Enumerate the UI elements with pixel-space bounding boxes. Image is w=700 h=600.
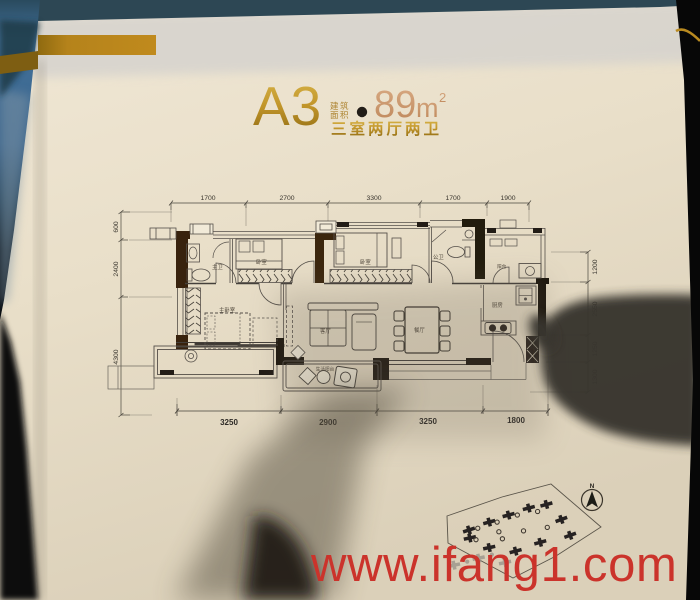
svg-text:2: 2 (439, 90, 446, 105)
svg-text:卧室: 卧室 (360, 258, 371, 266)
svg-text:2700: 2700 (279, 195, 294, 202)
svg-text:3250: 3250 (220, 418, 238, 427)
svg-text:3300: 3300 (366, 195, 381, 202)
svg-text:2400: 2400 (113, 261, 120, 276)
svg-text:1200: 1200 (592, 259, 599, 274)
svg-text:主卫: 主卫 (212, 263, 223, 271)
svg-text:m: m (416, 93, 439, 123)
svg-text:阳台: 阳台 (497, 263, 507, 270)
svg-text:主卧室: 主卧室 (219, 306, 236, 314)
svg-text:N: N (590, 483, 595, 490)
svg-text:A3: A3 (253, 75, 322, 137)
svg-text:www.ifang1.com: www.ifang1.com (310, 538, 678, 592)
svg-text:面积: 面积 (330, 110, 350, 120)
svg-text:公卫: 公卫 (433, 254, 444, 261)
svg-text:三室两厅两卫: 三室两厅两卫 (331, 119, 442, 138)
svg-text:1700: 1700 (445, 195, 460, 202)
svg-text:1900: 1900 (500, 195, 515, 202)
svg-text:卧室: 卧室 (256, 258, 267, 266)
svg-text:600: 600 (113, 221, 120, 233)
svg-text:89: 89 (374, 84, 416, 126)
svg-text:1700: 1700 (200, 195, 215, 202)
svg-text:4300: 4300 (113, 349, 120, 364)
